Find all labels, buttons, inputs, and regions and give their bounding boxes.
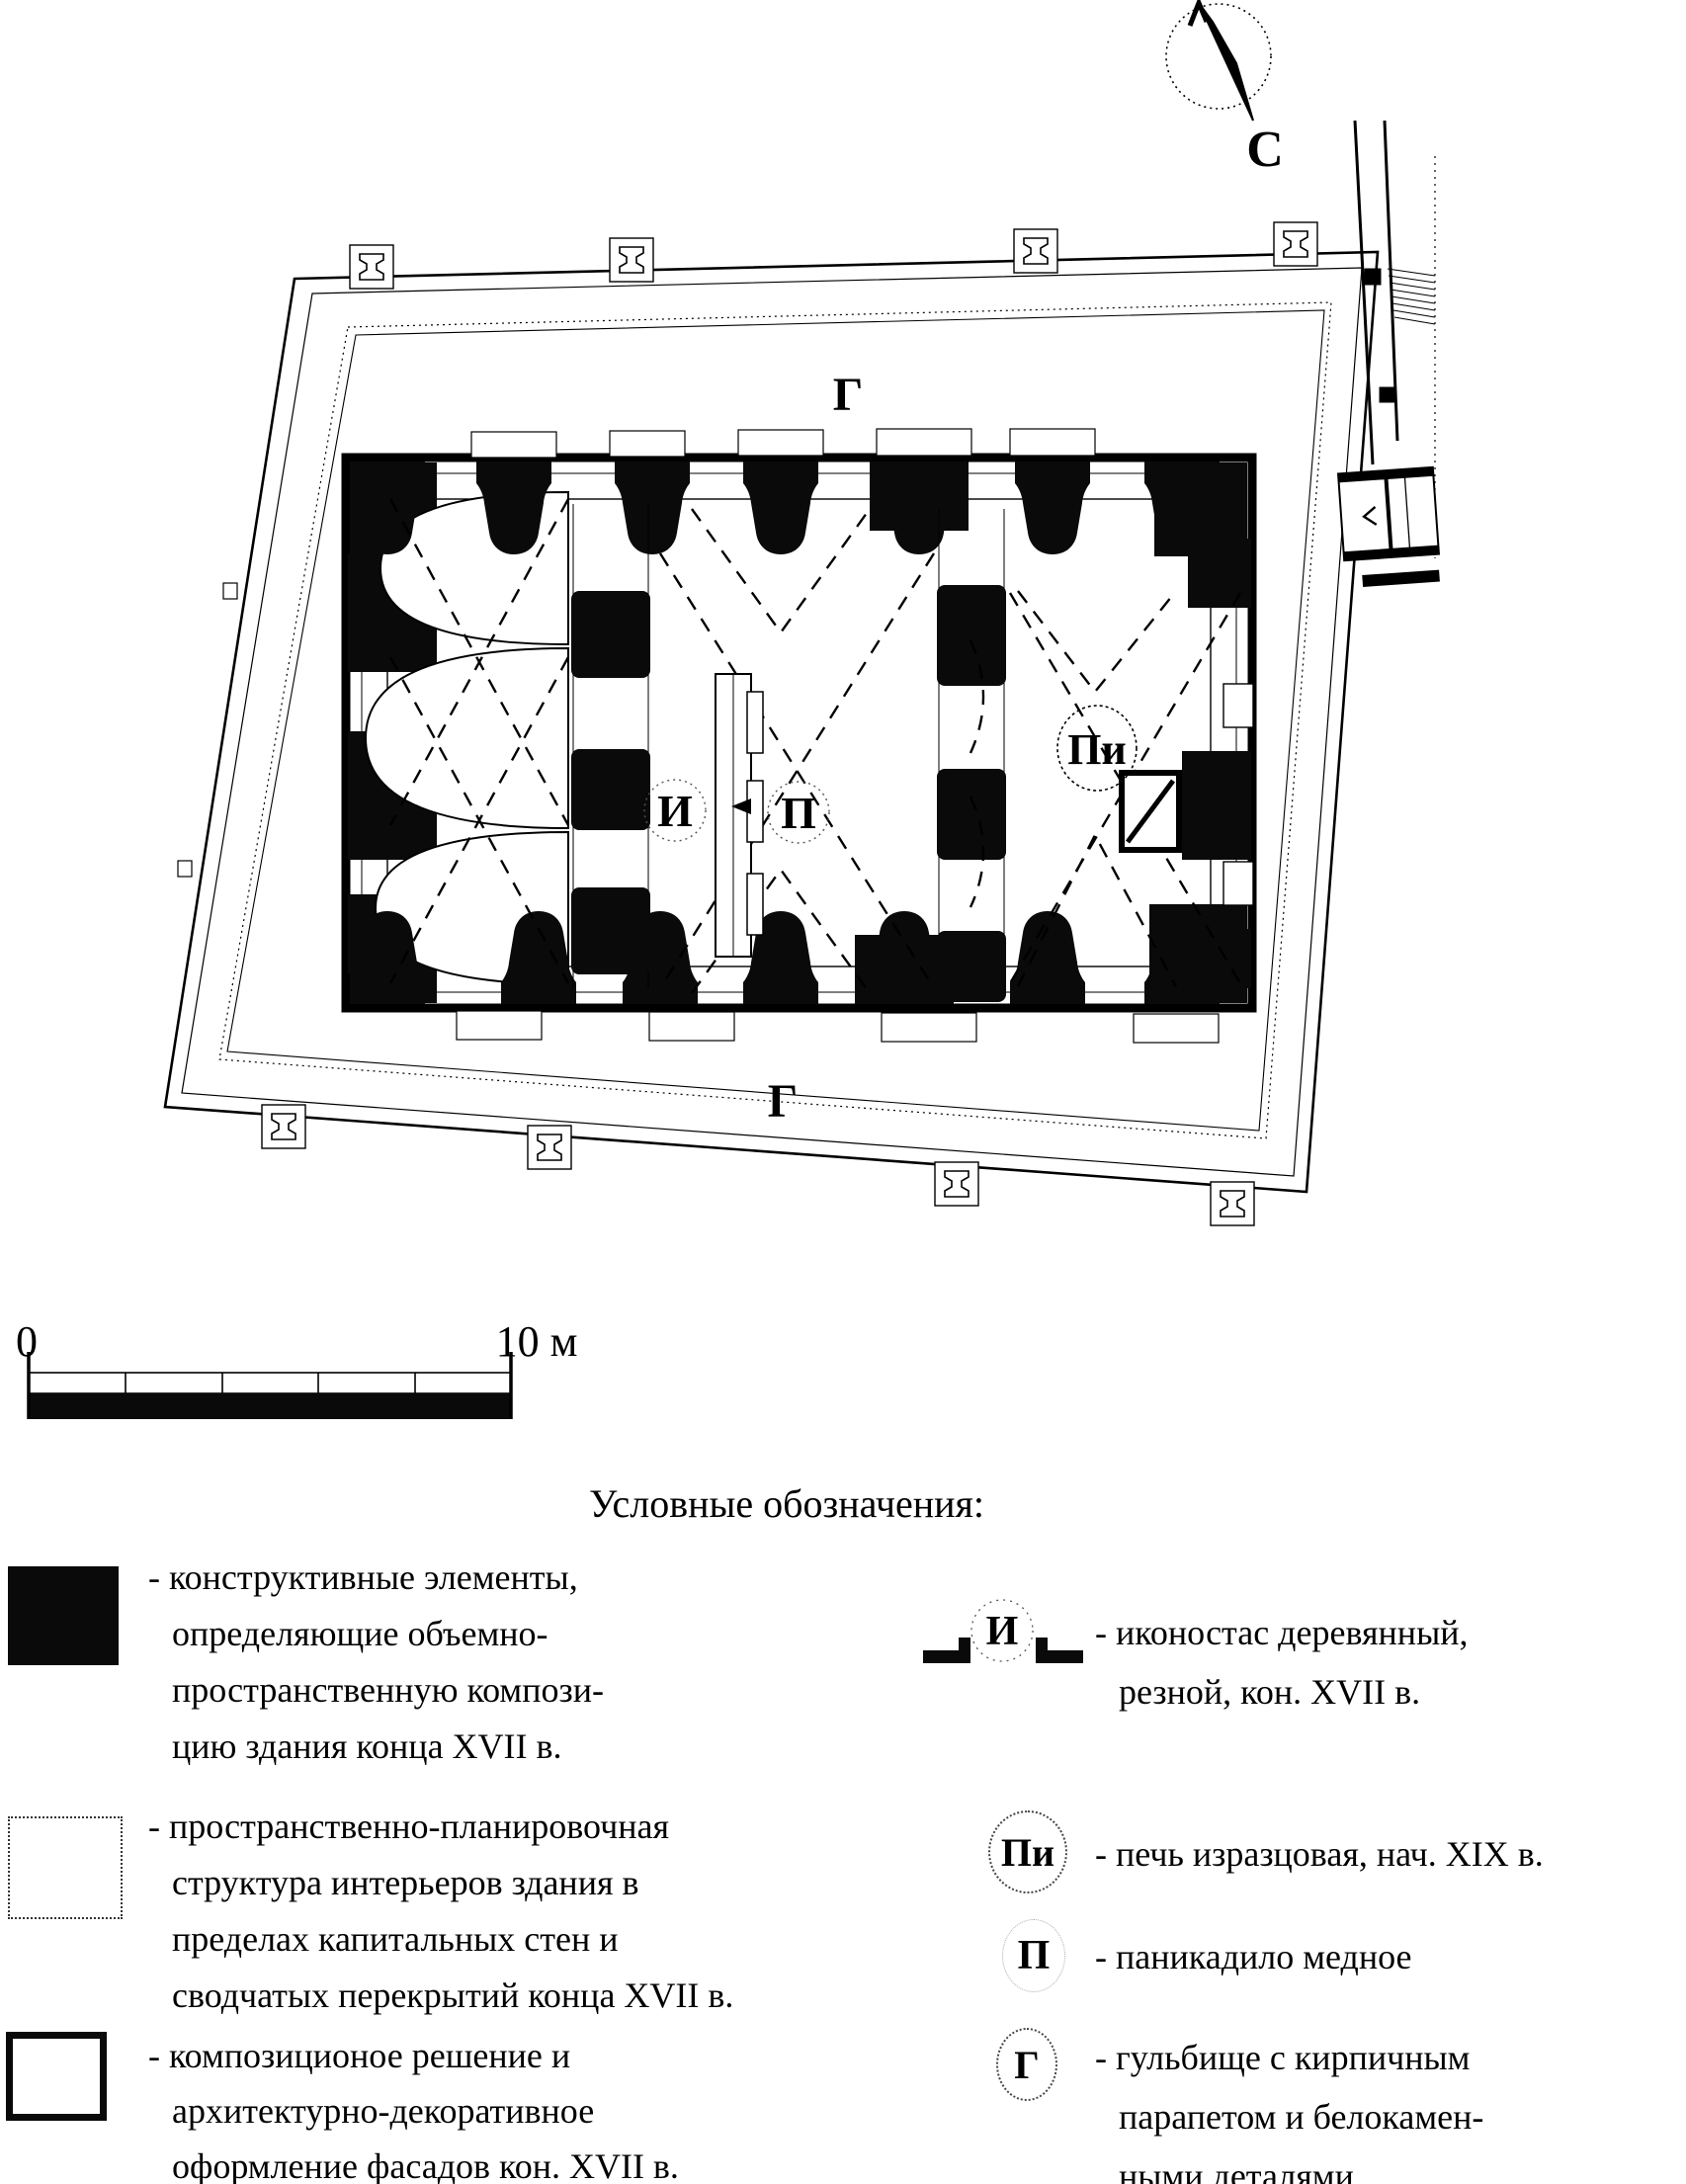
apse-lobes xyxy=(366,492,568,984)
chandelier-label: П xyxy=(781,788,816,838)
svg-text:И: И xyxy=(986,1609,1019,1654)
legend-symbol-gallery: Г xyxy=(996,2028,1057,2101)
gallery-top-label: Г xyxy=(833,369,864,421)
compass-circle-icon xyxy=(1166,4,1271,109)
north-label: С xyxy=(1246,122,1284,178)
legend-item-chandelier: - паникадило медное xyxy=(1095,1929,1412,1985)
stove-symbol xyxy=(1122,773,1179,850)
legend-item-stove: - печь изразцовая, нач. XIX в. xyxy=(1095,1826,1544,1883)
scale-end-label: 10 м xyxy=(496,1317,578,1366)
gallery-bottom-label: Г xyxy=(768,1075,799,1128)
legend-item-constructive: - конструктивные элементы, определяющие … xyxy=(148,1550,604,1775)
church-plan: И П Пи xyxy=(346,429,1253,1043)
north-compass: С xyxy=(1166,3,1284,178)
scale-bar: 0 10 м xyxy=(16,1317,577,1419)
iconostasis-label: И xyxy=(657,786,693,836)
plan-drawing: С xyxy=(0,0,1686,1443)
legend-symbol-chandelier: П xyxy=(1002,1919,1065,1992)
legend-item-gallery: - гульбище с кирпичным парапетом и белок… xyxy=(1095,2028,1483,2184)
stove-label: Пи xyxy=(1067,725,1127,774)
legend-item-spatial: - пространственно-планировочная структур… xyxy=(148,1799,733,2024)
scale-start-label: 0 xyxy=(16,1317,38,1366)
legend-symbol-iconostasis: И xyxy=(917,1593,1091,1678)
legend-swatch-spatial xyxy=(8,1816,123,1919)
legend-swatch-facade xyxy=(6,2032,107,2121)
iconostasis-symbol xyxy=(716,674,763,957)
floor-plan-sheet: С xyxy=(0,0,1686,2184)
stair-hatching-icon xyxy=(1388,269,1435,324)
legend-item-facade: - композиционое решение и архитектурно-д… xyxy=(148,2028,679,2184)
legend-item-iconostasis: - иконостас деревянный, резной, кон. XVI… xyxy=(1095,1603,1469,1722)
legend-title: Условные обозначения: xyxy=(441,1480,1133,1527)
legend-swatch-constructive xyxy=(8,1566,119,1665)
legend-symbol-stove: Пи xyxy=(988,1810,1067,1893)
